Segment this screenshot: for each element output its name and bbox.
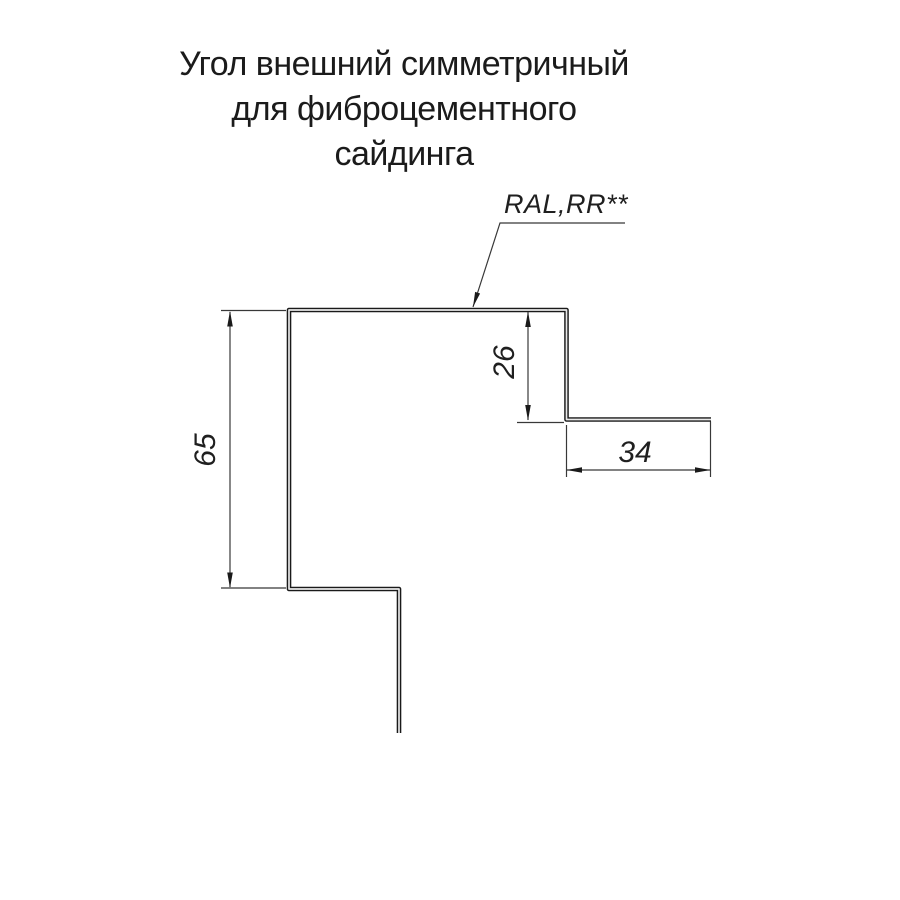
dimension-right-flange: 34 bbox=[567, 422, 711, 478]
profile-drawing-canvas: 65 26 34 RAL,RR** bbox=[0, 0, 900, 900]
dimension-right-step: 26 bbox=[488, 312, 564, 423]
dimension-label-65: 65 bbox=[189, 433, 222, 467]
arrow-up-icon bbox=[525, 312, 531, 328]
arrow-down-icon bbox=[525, 405, 531, 421]
leader-line bbox=[473, 223, 625, 307]
arrow-up-icon bbox=[227, 311, 233, 327]
arrow-left-icon bbox=[567, 467, 583, 473]
coating-label: RAL,RR** bbox=[504, 189, 629, 219]
dimension-label-34: 34 bbox=[618, 436, 651, 469]
leader-arrow-icon bbox=[473, 292, 480, 307]
arrow-right-icon bbox=[695, 467, 711, 473]
dimension-left-height: 65 bbox=[189, 311, 286, 589]
dimension-label-26: 26 bbox=[488, 345, 521, 380]
coating-callout: RAL,RR** bbox=[473, 189, 629, 307]
arrow-down-icon bbox=[227, 573, 233, 589]
drawing-page: Угол внешний симметричный для фиброцемен… bbox=[0, 0, 900, 900]
